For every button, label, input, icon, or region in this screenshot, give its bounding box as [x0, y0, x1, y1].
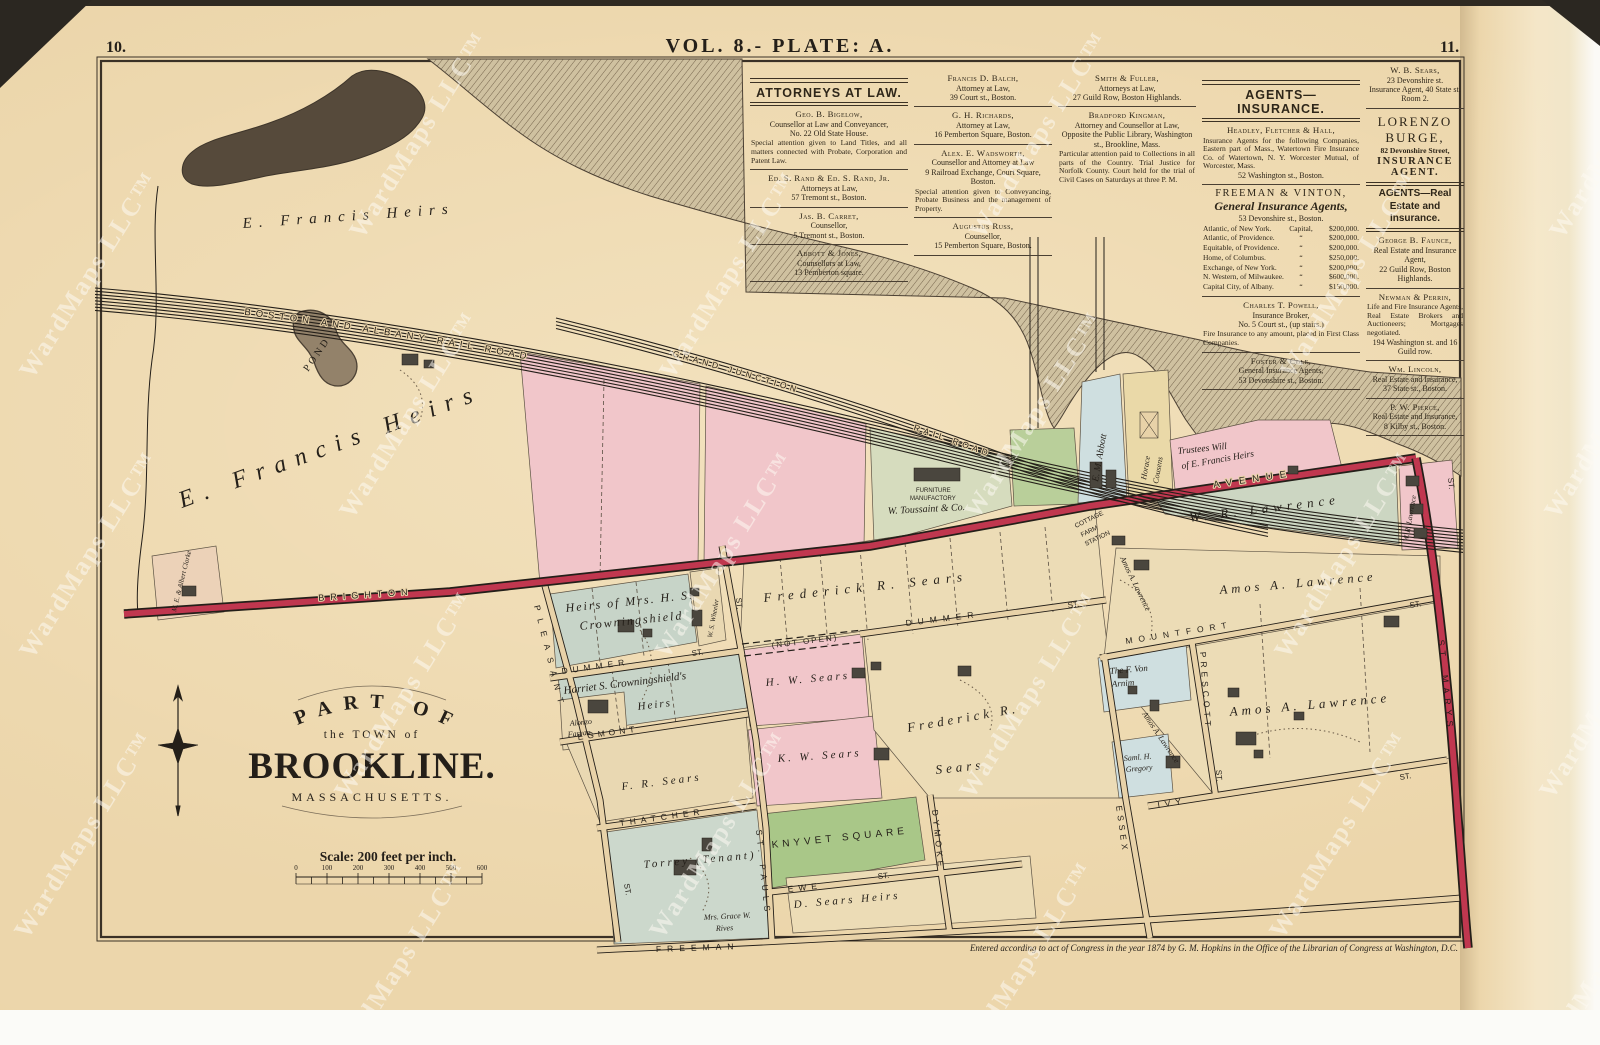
svg-text:ST.: ST.	[1446, 477, 1456, 489]
directory-entry: George B. Faunce, Real Estate and Insura…	[1366, 232, 1464, 287]
svg-text:500: 500	[446, 864, 457, 872]
title-brookline: BROOKLINE.	[248, 746, 495, 787]
svg-text:ST.: ST.	[1399, 771, 1412, 782]
directory-entry: Francis D. Balch, Attorney at Law, 39 Co…	[914, 70, 1052, 106]
svg-text:200: 200	[353, 864, 364, 872]
directory-entry: Bradford Kingman, Attorney and Counsello…	[1058, 106, 1196, 188]
directory-entry: P. W. Pierce, Real Estate and Insurance,…	[1366, 398, 1464, 435]
directory-entry: Augustus Russ, Counsellor, 15 Pemberton …	[914, 217, 1052, 254]
directory-entry-freeman-vinton: FREEMAN & VINTON, General Insurance Agen…	[1202, 184, 1360, 296]
svg-text:ST.: ST.	[1067, 600, 1080, 610]
label-railroad-boston-albany: BOSTON AND ALBANY RAIL ROAD	[244, 307, 533, 363]
svg-text:FREEMAN: FREEMAN	[656, 941, 740, 954]
directory-column-insurance: AGENTS—INSURANCE. Headley, Fletcher & Ha…	[1202, 80, 1360, 390]
scan-edge-bottom	[0, 1010, 1600, 1045]
insurance-header: AGENTS—INSURANCE.	[1202, 85, 1360, 118]
label-toussaint-2: MANUFACTORY	[910, 496, 956, 502]
company-row: N. Western, of Milwaukee.“$600,000.	[1203, 272, 1359, 282]
directory-entry: Headley, Fletcher & Hall, Insurance Agen…	[1202, 122, 1360, 184]
svg-text:300: 300	[384, 864, 395, 872]
directory-entry: Newman & Perrin, Life and Fire Insurance…	[1366, 288, 1464, 361]
svg-text:400: 400	[415, 864, 426, 872]
svg-text:ST.: ST.	[1409, 599, 1422, 610]
directory-column-real-estate: W. B. Sears, 23 Devonshire st. Insurance…	[1366, 62, 1464, 436]
title-massachusetts: MASSACHUSETTS.	[291, 790, 452, 804]
directory-entry: Geo. B. Bigelow, Counsellor at Law and C…	[750, 106, 908, 169]
company-row: Capital City, of Albany.“$150,000.	[1203, 282, 1359, 292]
directory-entry: Ed. S. Rand & Ed. S. Rand, Jr. Attorneys…	[750, 169, 908, 206]
page-number-left: 10.	[106, 39, 126, 56]
svg-text:600: 600	[477, 864, 488, 872]
directory-entry: W. B. Sears, 23 Devonshire st. Insurance…	[1366, 62, 1464, 108]
svg-text:ST.: ST.	[734, 597, 744, 609]
directory-entry: Abbott & Jones, Counsellors at Law, 13 P…	[750, 244, 908, 281]
plate-title: VOL. 8.- PLATE: A.	[666, 35, 895, 57]
scale-text: Scale: 200 feet per inch.	[320, 849, 457, 864]
svg-text:ST.: ST.	[691, 647, 704, 658]
svg-text:0: 0	[294, 864, 298, 872]
svg-text:Arnim: Arnim	[1110, 677, 1135, 689]
svg-text:DYMOKE: DYMOKE	[930, 809, 946, 871]
directory-entry: G. H. Richards, Attorney at Law, 16 Pemb…	[914, 106, 1052, 143]
svg-text:ST.: ST.	[877, 871, 889, 881]
company-row: Home, of Columbus.“$250,000.	[1203, 253, 1359, 263]
directory-column-attorneys-3: Smith & Fuller, Attorneys at Law, 27 Gui…	[1058, 70, 1196, 189]
directory-entry-burge: LORENZO BURGE, 82 Devonshire Street, INS…	[1366, 108, 1464, 182]
svg-text:E. Francis Heirs: E. Francis Heirs	[241, 201, 455, 232]
directory-entry: Alex. E. Wadsworth, Counsellor and Attor…	[914, 144, 1052, 218]
svg-text:100: 100	[322, 864, 333, 872]
directory-column-attorneys-1: ATTORNEYS AT LAW. Geo. B. Bigelow, Couns…	[750, 78, 908, 282]
company-row: Atlantic, of New York.Capital,$200,000.	[1203, 224, 1359, 234]
property-boundary	[137, 186, 158, 614]
scale-bar: Scale: 200 feet per inch. 0 100 200 300 …	[294, 849, 488, 884]
company-row: Equitable, of Providence.“$200,000.	[1203, 243, 1359, 253]
directory-entry: Charles T. Powell, Insurance Broker, No.…	[1202, 296, 1360, 352]
scanned-atlas-page: 10. 11. VOL. 8.- PLATE: A.	[0, 0, 1600, 1045]
copyright-line: Entered according to act of Congress in …	[969, 943, 1458, 953]
company-row: Exchange, of New York.“$200,000.	[1203, 263, 1359, 273]
company-row: Atlantic, of Providence.“$200,000.	[1203, 233, 1359, 243]
title-block: PART OF the TOWN of BROOKLINE. MASSACHUS…	[248, 686, 495, 818]
real-estate-header: AGENTS—Real Estate and Insurance.	[1366, 186, 1464, 228]
compass-rose	[158, 686, 198, 816]
label-toussaint-1: FURNITURE	[916, 488, 951, 494]
directory-entry: Foster & Cole, General Insurance Agents,…	[1202, 352, 1360, 389]
directory-column-attorneys-2: Francis D. Balch, Attorney at Law, 39 Co…	[914, 70, 1052, 256]
title-the-town-of: the TOWN of	[324, 729, 420, 741]
directory-entry: Smith & Fuller, Attorneys at Law, 27 Gui…	[1058, 70, 1196, 106]
directory-entry: Jas. B. Carret, Counsellor, 5 Tremont st…	[750, 207, 908, 244]
attorneys-header: ATTORNEYS AT LAW.	[750, 83, 908, 102]
directory-entry: Wm. Lincoln, Real Estate and Insurance, …	[1366, 360, 1464, 397]
svg-text:IVY: IVY	[1157, 796, 1187, 810]
svg-text:ST.: ST.	[1214, 770, 1224, 782]
river-channel	[182, 70, 425, 186]
svg-text:E. Francis Heirs: E. Francis Heirs	[174, 380, 485, 514]
svg-text:Rives: Rives	[715, 923, 734, 933]
page-number-right: 11.	[1440, 39, 1459, 56]
